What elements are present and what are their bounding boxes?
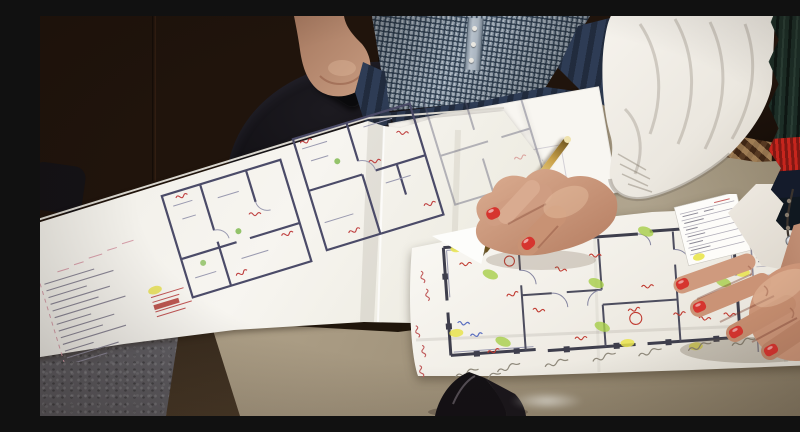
woman-writing-hand <box>446 152 621 277</box>
shirt-button <box>469 58 474 63</box>
sunglasses <box>423 366 543 416</box>
shirt-button <box>471 42 476 47</box>
woman-resting-hand <box>652 252 800 378</box>
shirt-button <box>472 26 477 31</box>
shirt-placket <box>464 18 484 71</box>
photo-plan-review <box>40 16 800 416</box>
table-light-reflection <box>510 392 584 410</box>
